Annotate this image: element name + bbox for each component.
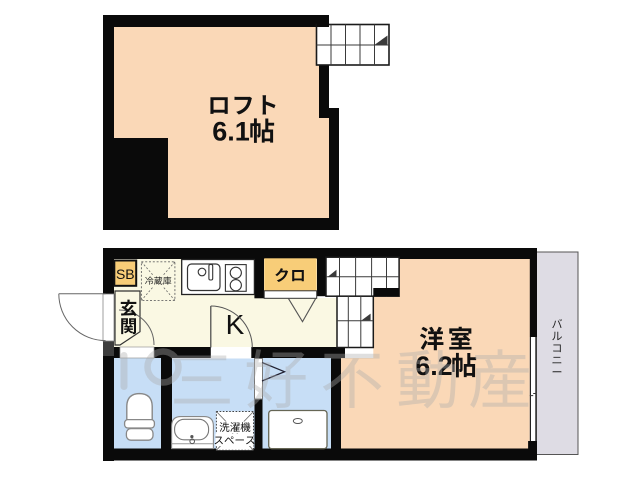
svg-text:SB: SB: [116, 266, 135, 282]
svg-text:6.1: 6.1: [212, 117, 250, 147]
